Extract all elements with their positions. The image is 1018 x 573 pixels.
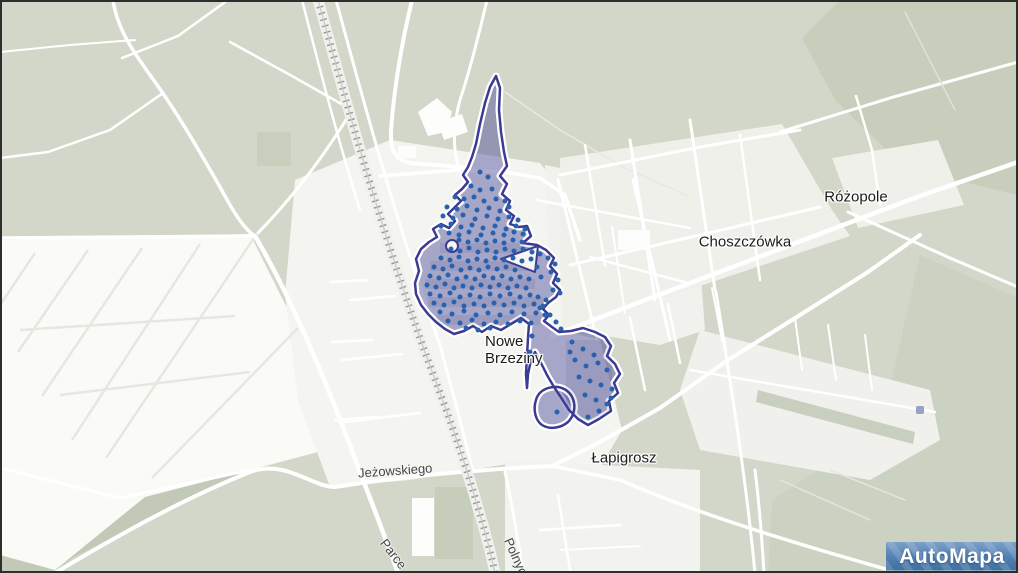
building-dot	[504, 227, 509, 232]
building-dot	[464, 326, 469, 331]
building-dot	[465, 204, 470, 209]
building-dot	[524, 286, 529, 291]
building-dot	[512, 230, 517, 235]
building-dot	[446, 319, 451, 324]
building-dot	[588, 379, 593, 384]
building-dot	[507, 205, 512, 210]
building-dot	[520, 259, 525, 264]
building-dot	[446, 273, 451, 278]
building-dot	[457, 255, 462, 260]
building-dot	[467, 230, 472, 235]
building-dot	[546, 256, 551, 261]
building-dot	[472, 302, 477, 307]
building-dot	[511, 256, 516, 261]
automapa-logo: AutoMapa	[886, 542, 1018, 571]
building-dot	[518, 319, 523, 324]
building-dot	[474, 313, 479, 318]
map-canvas[interactable]: Różopole Choszczówka Nowe Brzeziny Łapig…	[0, 0, 1018, 573]
building-dot	[597, 409, 602, 414]
building-dot	[534, 311, 539, 316]
building-dot	[521, 247, 526, 252]
building-dot	[502, 258, 507, 263]
building-dot	[467, 246, 472, 251]
building-dot	[518, 275, 523, 280]
building-dot	[512, 301, 517, 306]
building-dot	[442, 303, 447, 308]
building-dot	[495, 267, 500, 272]
building-dot	[536, 295, 541, 300]
building-dot	[508, 292, 513, 297]
building-dot	[476, 250, 481, 255]
building-dot	[523, 227, 528, 232]
building-dot	[502, 241, 507, 246]
building-dot	[488, 292, 493, 297]
place-label-choszczowka: Choszczówka	[699, 234, 792, 251]
building-dot	[486, 311, 491, 316]
building-dot	[472, 195, 477, 200]
building-dot	[498, 313, 503, 318]
building-dot	[527, 277, 532, 282]
place-label-nowe: Nowe	[485, 333, 543, 350]
building-dot	[425, 283, 430, 288]
building-dot	[543, 313, 548, 318]
building-dot	[452, 286, 457, 291]
building-dot	[473, 217, 478, 222]
building-dot	[447, 231, 452, 236]
building-dot	[470, 286, 475, 291]
building-dot	[493, 256, 498, 261]
building-dot	[609, 396, 614, 401]
building-dot	[507, 215, 512, 220]
building-dot	[553, 262, 558, 267]
building-dot	[478, 170, 483, 175]
building-dot	[529, 321, 534, 326]
building-dot	[450, 264, 455, 269]
building-dot	[428, 274, 433, 279]
place-label-rozopole: Różopole	[824, 189, 887, 206]
building-dot	[449, 222, 454, 227]
place-label-lapigrosz-text: Łapigrosz	[591, 450, 656, 467]
building-dot	[577, 375, 582, 380]
automapa-logo-text: AutoMapa	[899, 545, 1005, 569]
building-dot	[461, 284, 466, 289]
building-dot	[584, 364, 589, 369]
building-dot	[568, 350, 573, 355]
building-dot	[610, 387, 615, 392]
building-dot	[538, 252, 543, 257]
building-dot	[432, 265, 437, 270]
building-dot	[478, 188, 483, 193]
building-dot	[488, 326, 493, 331]
building-dot	[494, 320, 499, 325]
building-dot	[486, 175, 491, 180]
building-dot	[473, 277, 478, 282]
building-dot	[437, 276, 442, 281]
building-dot	[518, 295, 523, 300]
building-dot	[559, 327, 564, 332]
building-dot	[504, 265, 509, 270]
building-dot	[482, 199, 487, 204]
building-dot	[466, 240, 471, 245]
building-dot	[592, 353, 597, 358]
building-dot	[493, 224, 498, 229]
building-dot	[583, 393, 588, 398]
building-dot	[515, 284, 520, 289]
building-dot	[452, 300, 457, 305]
building-dot	[514, 224, 519, 229]
building-dot	[462, 304, 467, 309]
building-dot	[434, 285, 439, 290]
building-dot	[479, 233, 484, 238]
building-dot	[554, 320, 559, 325]
building-dot	[482, 322, 487, 327]
building-dot	[484, 259, 489, 264]
building-dot	[520, 240, 525, 245]
building-dot	[605, 402, 610, 407]
building-dot	[594, 398, 599, 403]
building-dot	[586, 415, 591, 420]
building-dot	[513, 268, 518, 273]
building-dot	[476, 328, 481, 333]
building-dot	[493, 239, 498, 244]
map-svg	[0, 0, 1018, 573]
building-dot	[459, 268, 464, 273]
building-dot	[439, 224, 444, 229]
building-dot	[470, 318, 475, 323]
building-dot	[441, 214, 446, 219]
building-dot	[461, 213, 466, 218]
building-dot	[487, 206, 492, 211]
building-dot	[551, 288, 556, 293]
building-dot	[491, 231, 496, 236]
building-dot	[477, 268, 482, 273]
building-dot	[535, 265, 540, 270]
building-dot	[450, 312, 455, 317]
building-dot	[539, 275, 544, 280]
building-dot	[558, 291, 563, 296]
building-dot	[570, 340, 575, 345]
building-dot	[528, 293, 533, 298]
building-dot	[506, 322, 511, 327]
building-dot	[522, 312, 527, 317]
building-dot	[443, 282, 448, 287]
building-dot	[468, 293, 473, 298]
building-dot	[581, 347, 586, 352]
building-dot	[486, 265, 491, 270]
building-dot	[544, 298, 549, 303]
building-dot	[481, 226, 486, 231]
building-dot	[438, 294, 443, 299]
building-dot	[497, 283, 502, 288]
building-dot	[488, 285, 493, 290]
building-dot	[459, 225, 464, 230]
building-dot	[470, 223, 475, 228]
place-label-brzeziny: Brzeziny	[485, 350, 543, 367]
building-dot	[475, 238, 480, 243]
place-label-nowe-brzeziny: Nowe Brzeziny	[485, 333, 543, 367]
building-dot	[599, 383, 604, 388]
building-dot	[500, 274, 505, 279]
building-dot	[458, 321, 463, 326]
building-dot	[511, 238, 516, 243]
building-dot	[530, 250, 535, 255]
building-dot	[521, 232, 526, 237]
building-dot	[475, 257, 480, 262]
building-dot	[458, 249, 463, 254]
building-dot	[512, 249, 517, 254]
building-dot	[491, 276, 496, 281]
building-dot	[438, 310, 443, 315]
place-label-rozopole-text: Różopole	[824, 189, 887, 206]
building-dot	[428, 292, 433, 297]
building-dot	[432, 301, 437, 306]
building-dot	[448, 258, 453, 263]
building-dot	[448, 291, 453, 296]
building-dot	[484, 241, 489, 246]
building-dot	[458, 295, 463, 300]
building-dot	[509, 277, 514, 282]
building-dot	[555, 410, 560, 415]
building-dot	[529, 257, 534, 262]
building-dot	[485, 248, 490, 253]
building-dot	[479, 283, 484, 288]
building-dot	[532, 302, 537, 307]
building-dot	[457, 233, 462, 238]
building-dot	[502, 303, 507, 308]
poi-marker	[916, 406, 924, 414]
building-dot	[556, 278, 561, 283]
building-dot	[494, 197, 499, 202]
building-dot	[441, 267, 446, 272]
building-dot	[490, 187, 495, 192]
building-dot	[485, 214, 490, 219]
building-dot	[503, 247, 508, 252]
building-dot	[478, 295, 483, 300]
building-dot	[502, 233, 507, 238]
building-dot	[548, 313, 553, 318]
building-dot	[482, 274, 487, 279]
building-dot	[469, 184, 474, 189]
building-dot	[449, 247, 454, 252]
building-dot	[573, 358, 578, 363]
building-dot	[522, 304, 527, 309]
building-dot	[482, 304, 487, 309]
building-dot	[506, 286, 511, 291]
building-dot	[503, 199, 508, 204]
building-dot	[462, 309, 467, 314]
building-dot	[455, 277, 460, 282]
building-dot	[466, 259, 471, 264]
building-dot	[516, 218, 521, 223]
building-dot	[596, 361, 601, 366]
building-dot	[538, 306, 543, 311]
building-dot	[439, 256, 444, 261]
building-dot	[453, 195, 458, 200]
building-dot	[498, 209, 503, 214]
building-dot	[455, 207, 460, 212]
building-dot	[494, 250, 499, 255]
place-label-choszczowka-text: Choszczówka	[699, 234, 792, 251]
building-dot	[510, 310, 515, 315]
building-dot	[468, 266, 473, 271]
building-dot	[498, 294, 503, 299]
building-dot	[496, 217, 501, 222]
building-dot	[462, 197, 467, 202]
building-dot	[475, 208, 480, 213]
building-dot	[492, 301, 497, 306]
place-label-lapigrosz: Łapigrosz	[591, 450, 656, 467]
building-dot	[549, 270, 554, 275]
building-dot	[457, 238, 462, 243]
building-dot	[451, 216, 456, 221]
building-dot	[464, 275, 469, 280]
building-dot	[445, 205, 450, 210]
building-dot	[605, 368, 610, 373]
